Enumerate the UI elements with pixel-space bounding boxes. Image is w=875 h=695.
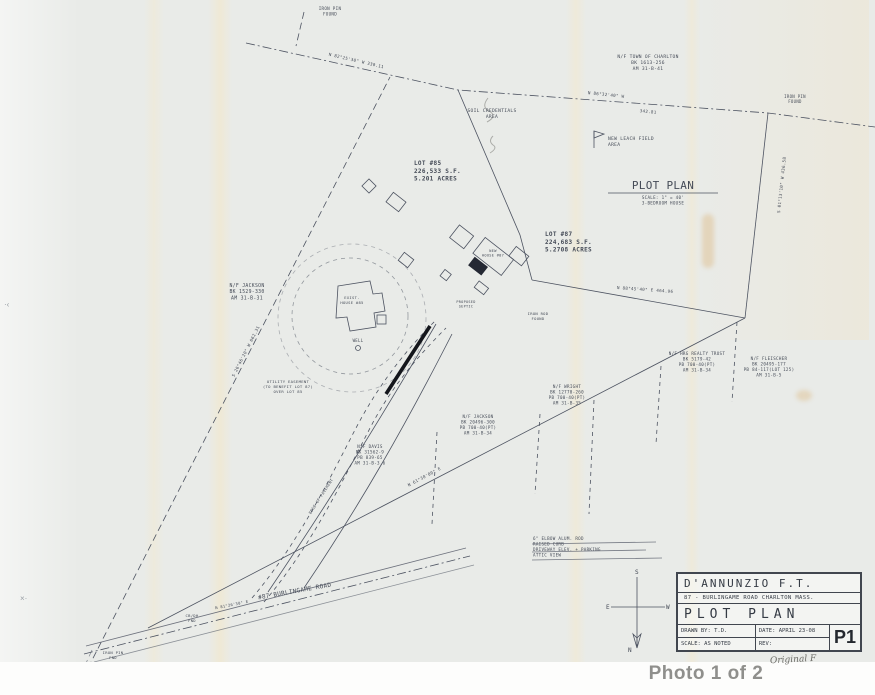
well-symbol xyxy=(356,346,361,351)
abutter-label: N/F HRG REALTY TRUSTBK 5179-42PB 700-40(… xyxy=(669,351,726,372)
existing-house-85 xyxy=(336,281,386,331)
leach-field-label: NEW LEACH FIELDAREA xyxy=(608,136,654,148)
scanned-plot-plan-photo: ×· ·‹ xyxy=(0,0,875,695)
iron-pin-label: IRON PINFOUND xyxy=(784,94,806,104)
sheet-number: P1 xyxy=(830,625,860,650)
titleblock-rev: REV: xyxy=(756,638,830,650)
well-label: WELL xyxy=(353,338,364,343)
title-block: D'ANNUNZIO F.T. 87 - BURLINGAME ROAD CHA… xyxy=(676,572,862,652)
titleblock-address: 87 - BURLINGAME ROAD CHARLTON MASS. xyxy=(678,593,860,604)
abutter-label: N/F JACKSONBK 20496-300PB 700-40(PT)AM 3… xyxy=(460,414,497,435)
burlingame-road-centerline xyxy=(84,556,470,654)
new-house-label: NEWHOUSE #87 xyxy=(482,249,504,258)
burlingame-road-edge xyxy=(94,565,474,662)
abutter-label: N/F JACKSONBK 1529-330AM 31-B-31 xyxy=(229,283,264,301)
iron-rod-label: IRON RODFOUND xyxy=(528,311,549,321)
bearing-label: S 26°46'20" W 662.31 xyxy=(231,325,261,378)
plot-plan-heading: PLOT PLAN xyxy=(632,179,694,192)
shed-structures xyxy=(362,179,414,268)
lot-87-label: LOT #87224,683 S.F.5.2708 ACRES xyxy=(545,231,592,254)
pavement-label: EDGE OF PAVEMENT xyxy=(307,477,334,515)
bearing-label: N 88°45'40" E 464.96 xyxy=(617,285,674,294)
sheet-corner-edge xyxy=(72,650,92,662)
abutter-label: N/F TOWN OF CHARLTONBK 1613-256AM 31-B-4… xyxy=(617,54,678,72)
compass-s-label: S xyxy=(635,569,639,576)
existing-house-label: EXIST.HOUSE #85 xyxy=(340,295,363,305)
leach-area-flag xyxy=(594,131,604,148)
monument-label: CB/DHFND xyxy=(186,613,199,623)
distance-label: 342.81 xyxy=(639,108,657,115)
photo-caption: Photo 1 of 2 xyxy=(618,663,794,685)
titleblock-title: PLOT PLAN xyxy=(678,604,860,625)
iron-pin-label: IRON PINFOUND xyxy=(319,6,342,16)
titleblock-scale: SCALE: AS NOTED xyxy=(678,638,756,650)
pencil-squiggle xyxy=(490,136,495,153)
compass-rose xyxy=(611,577,665,648)
retaining-wall-line xyxy=(386,326,430,394)
titleblock-date: DATE: APRIL 23-08 xyxy=(756,625,830,638)
scan-paper: ×· ·‹ xyxy=(0,0,875,662)
new-house-87-cluster xyxy=(427,211,528,312)
compass-n-label: N xyxy=(628,647,632,654)
septic-label: PROPOSEDSEPTIC xyxy=(456,300,475,309)
titleblock-drawn-by: DRAWN BY: T.D. xyxy=(678,625,756,638)
east-boundary-line xyxy=(745,113,768,318)
top-road-branch xyxy=(296,12,304,46)
area-note: SOIL CREDENTIALSAREA xyxy=(467,108,516,120)
lot-85-label: LOT #85226,533 S.F.5.201 ACRES xyxy=(414,160,461,183)
compass-w-label: W xyxy=(666,604,670,611)
bearing-label: S 01°13'10" W 436.58 xyxy=(776,156,787,213)
titleblock-owner: D'ANNUNZIO F.T. xyxy=(678,574,860,593)
abutter-label: N/F FLEISCHERBK 20495-177PB 84-117(LOT 1… xyxy=(744,356,795,377)
access-corridor-line xyxy=(268,324,436,592)
bearing-label: N 82°25'30" W 330.11 xyxy=(328,52,384,70)
construction-note: 6" ELBOW ALUM. RODRAISED CURBDRIVEWAY EL… xyxy=(533,536,601,557)
abutter-label: N/F WRIGHTBK 12770-260PB 700-40(PT)AM 31… xyxy=(549,384,586,405)
bearing-label: N 86°32'40" W xyxy=(588,90,625,99)
plot-plan-subtitle: SCALE: 1" = 40'3-BEDROOM HOUSE xyxy=(642,195,684,205)
abutter-label: N/F DAVISBK 31562-9PB 839-65AM 31-B-3.6 xyxy=(354,444,385,465)
compass-e-label: E xyxy=(606,604,610,611)
setback-radius-circle xyxy=(292,258,408,374)
iron-pin-label: IRON PINFND xyxy=(103,650,124,660)
easement-note: UTILITY EASEMENT(TO BENEFIT LOT 87)OVER … xyxy=(263,379,313,394)
plot-plan-drawing: IRON PINFOUNDN 82°25'30" W 330.11N 86°32… xyxy=(0,0,875,662)
